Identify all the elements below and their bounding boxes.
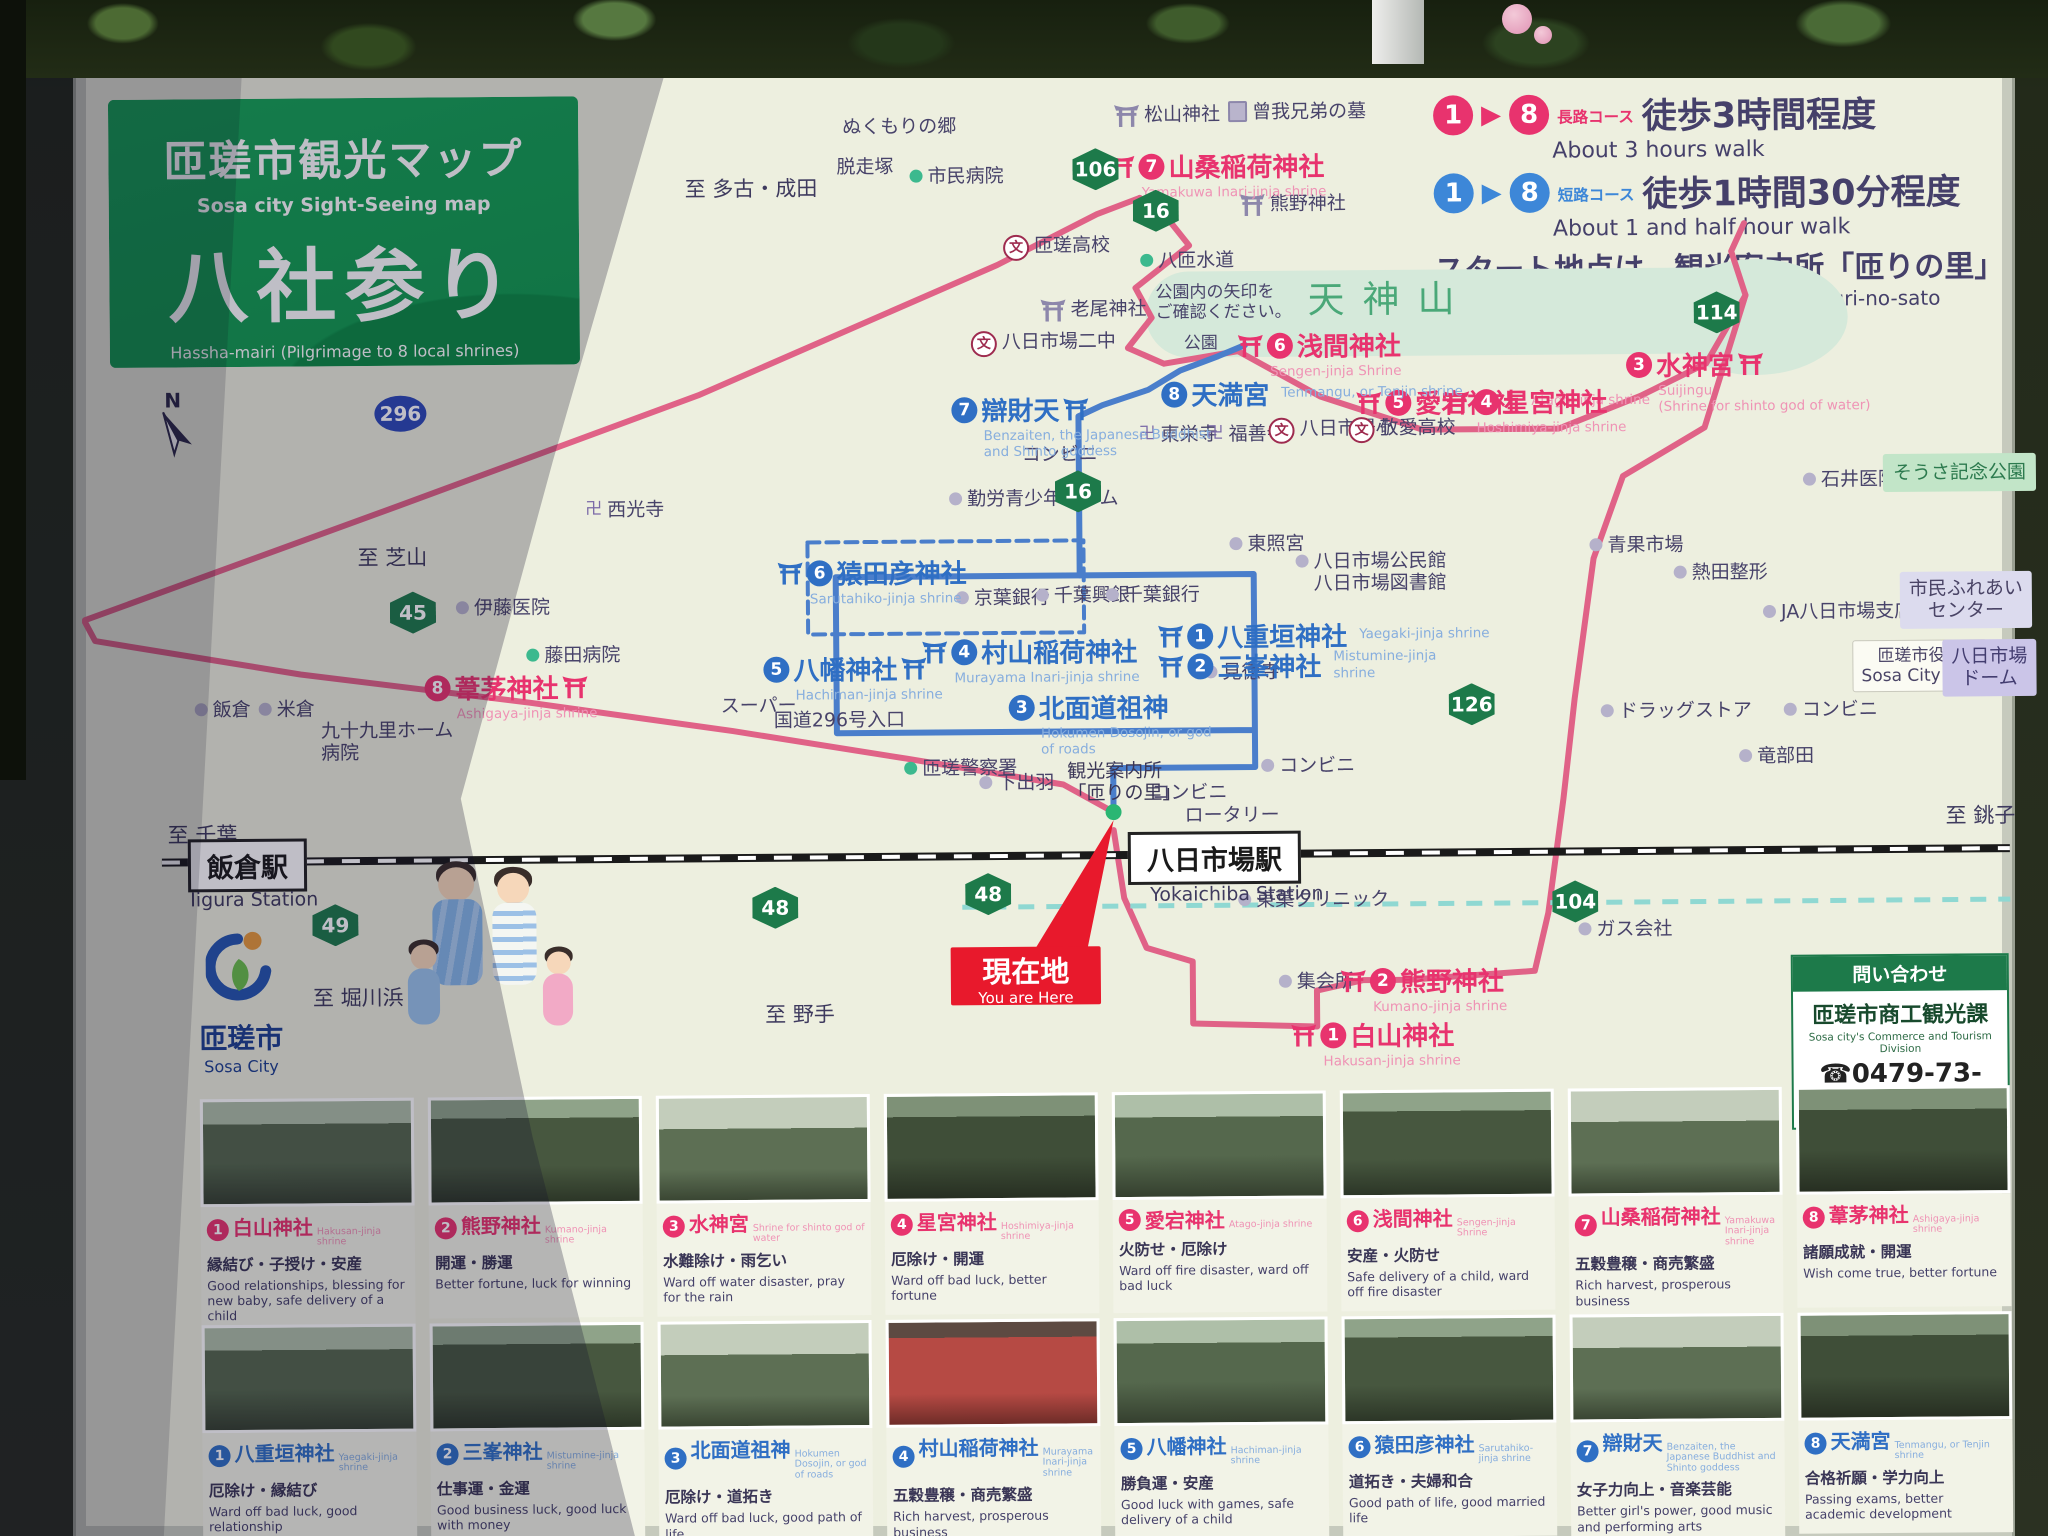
- compass-icon: N: [144, 389, 205, 465]
- shrine-number-badge: 1: [1320, 1022, 1346, 1048]
- you-are-here-en: You are Here: [951, 988, 1101, 1007]
- map-label-text: ぬくもりの郷: [842, 115, 956, 138]
- shrine-romaji: Atago-jinja shrine: [1229, 1220, 1313, 1231]
- shrine-photo: [1112, 1090, 1327, 1200]
- shrine-photo: [1798, 1311, 2013, 1421]
- shrine-benefit-en: Good luck with games, safe delivery of a…: [1121, 1495, 1323, 1527]
- shrine-marker-row: 3北面道祖神: [1009, 687, 1212, 726]
- shrine-card-title-row: 3水神宮Shrine for shinto god of water: [663, 1207, 865, 1245]
- shrine-name: 白山神社: [233, 1211, 313, 1241]
- shrine-marker-row: 2三峯神社Mistumine-jinja shrine: [1158, 646, 1436, 685]
- shrine-card: 7山桑稲荷神社Yamakuwa Inari-jinja shrine五穀豊穣・商…: [1568, 1087, 1784, 1321]
- shrine-number-badge: 8: [424, 675, 450, 701]
- shrine-romaji: Hachiman-jinja shrine: [796, 686, 943, 703]
- torii-icon: [1238, 334, 1263, 357]
- shrine-photo: [1114, 1316, 1329, 1426]
- shrine-benefit-en: Ward off bad luck, good relationship: [209, 1503, 411, 1535]
- map-label: 市民ふれあい センター: [1900, 571, 2032, 629]
- shrine-romaji: Hakusan-jinja shrine: [1323, 1052, 1460, 1069]
- shrine-card: 1八重垣神社Yaegaki-jinja shrine厄除け・縁結びWard of…: [202, 1324, 418, 1536]
- shrine-benefit-en: Safe delivery of a child, ward off fire …: [1347, 1268, 1549, 1300]
- shrine-number-badge: 6: [807, 560, 833, 586]
- shrine-benefit-jp: 安産・火防せ: [1347, 1243, 1549, 1267]
- shrine-card-label: 5八幡神社Hachiman-jinja shrine勝負運・安産Good luc…: [1114, 1424, 1329, 1536]
- shrine-number-badge: 5: [763, 656, 789, 682]
- map-label: ガス会社: [1578, 918, 1672, 941]
- temple-icon: 卍: [585, 499, 602, 519]
- shrine-name: 辯財天: [981, 391, 1059, 429]
- shrine-card-title-row: 4村山稲荷神社Murayama Inari-jinja shrine: [892, 1431, 1094, 1480]
- shrine-benefit-en: Ward off fire disaster, ward off bad luc…: [1119, 1261, 1321, 1293]
- landmark-dot: [1589, 538, 1602, 551]
- shrine-marker: 7山桑稲荷神社Yamakuwa Inari-jinja shrine: [1109, 146, 1326, 201]
- shrine-marker-row: 7山桑稲荷神社: [1109, 146, 1326, 185]
- shrine-card-label: 2熊野神社Kumano-jinja shrine開運・勝運Better fort…: [429, 1204, 644, 1319]
- contact-dept: 匝瑳市商工観光課: [1793, 996, 2007, 1030]
- torii-icon: [1341, 969, 1366, 992]
- shrine-benefit-en: Good path of life, good married life: [1349, 1494, 1551, 1526]
- map-label: 熱田整形: [1674, 561, 1768, 584]
- shrine-romaji: Hachiman-jinja shrine: [1231, 1445, 1323, 1467]
- shrine-marker-row: 2熊野神社: [1341, 961, 1508, 999]
- shrine-photo: [886, 1318, 1101, 1428]
- shrine-romaji: Kumano-jinja shrine: [545, 1225, 637, 1247]
- map-label-text: 青果市場: [1607, 534, 1683, 557]
- shrine-card-title-row: 6猿田彦神社Sarutahiko-jinja shrine: [1348, 1428, 1550, 1466]
- shrine-photo: [428, 1096, 643, 1206]
- shrine-number-badge: 5: [1120, 1438, 1142, 1460]
- shrine-number-badge: 5: [1119, 1208, 1141, 1230]
- shrine-marker: 3水神宮 Suijingu (Shrine for shinto god of …: [1626, 344, 1871, 415]
- map-label: 下出羽: [979, 772, 1054, 795]
- map-label: 曾我兄弟の墓: [1228, 100, 1366, 123]
- shrine-card-title-row: 8天満宮Tenmangu, or Tenjin shrine: [1804, 1424, 2006, 1462]
- shrine-benefit-en: Ward off bad luck, better fortune: [891, 1271, 1093, 1303]
- shrine-card-title-row: 7辯財天Benzaiten, the Japanese Buddhist and…: [1576, 1426, 1778, 1475]
- you-are-here-arrow: [1026, 820, 1115, 963]
- shrine-card: 5愛宕神社Atago-jinja shrine火防せ・厄除けWard off f…: [1112, 1090, 1328, 1324]
- map-label-text: 藤田病院: [544, 644, 620, 667]
- shrine-card-label: 4村山稲荷神社Murayama Inari-jinja shrine五穀豊穣・商…: [886, 1426, 1101, 1536]
- map-label-text: 市民病院: [927, 165, 1003, 188]
- sosa-city-logo: 匝瑳市 Sosa City: [198, 929, 283, 1077]
- shrine-card-title-row: 1八重垣神社Yaegaki-jinja shrine: [208, 1437, 410, 1475]
- shrine-name: 辯財天: [1602, 1427, 1662, 1456]
- sign-content: 匝瑳市観光マップ Sosa city Sight-Seeing map 八社参り…: [0, 0, 2048, 1536]
- shrine-number-badge: 2: [1370, 967, 1396, 993]
- landmark-dot: [259, 703, 272, 716]
- shrine-photo: [656, 1094, 871, 1204]
- map-label-text: ガス会社: [1596, 918, 1672, 941]
- landmark-dot-green: [526, 649, 539, 662]
- shrine-card: 3水神宮Shrine for shinto god of water水難除け・雨…: [656, 1094, 872, 1328]
- landmark-dot: [979, 776, 992, 789]
- map-label: 青果市場: [1589, 534, 1683, 557]
- landmark-dot-green: [910, 170, 923, 183]
- shrine-marker-row: 8葦茅神社: [424, 668, 597, 706]
- station-name-en: Iigura Station: [190, 888, 318, 911]
- shrine-number-badge: 3: [663, 1216, 685, 1238]
- torii-icon: [1158, 625, 1183, 648]
- landmark-dot: [456, 601, 469, 614]
- sign-photo-scene: 匝瑳市観光マップ Sosa city Sight-Seeing map 八社参り…: [0, 0, 2048, 1536]
- map-label-text: 竜部田: [1757, 745, 1814, 768]
- shrine-number-badge: 3: [1009, 694, 1035, 720]
- shrine-romaji: Hoshimiya-jinja shrine: [1001, 1221, 1093, 1243]
- shrine-number-badge: 6: [1347, 1211, 1369, 1233]
- shrine-card-label: 6猿田彦神社Sarutahiko-jinja shrine道拓き・夫婦和合Goo…: [1342, 1423, 1557, 1536]
- shrine-number-badge: 7: [1138, 153, 1164, 179]
- landmark-dot: [1601, 704, 1614, 717]
- shrine-name: 葦茅神社: [454, 668, 558, 706]
- map-label-text: 八匝水道: [1158, 249, 1234, 272]
- pole: [1372, 0, 1424, 64]
- shrine-romaji: Sarutahiko-jinja shrine: [810, 590, 967, 607]
- contact-dept-en: Sosa city's Commerce and Tourism Divisio…: [1793, 1030, 2007, 1056]
- shrine-number-badge: 2: [436, 1444, 458, 1466]
- shrine-card: 3北面道祖神Hokumen Dosojin, or god of roads厄除…: [658, 1320, 874, 1536]
- school-icon: 文: [971, 331, 997, 357]
- landmark-dot: [1036, 589, 1049, 602]
- shrine-benefit-en: Better fortune, luck for winning: [435, 1275, 637, 1292]
- landmark-dot: [1279, 975, 1292, 988]
- map-label: 文匝瑳高校: [1003, 234, 1110, 261]
- map-label-text: 千葉銀行: [1124, 583, 1200, 606]
- shrine-name: 村山稲荷神社: [918, 1432, 1038, 1462]
- shrine-card: 8天満宮Tenmangu, or Tenjin shrine合格祈願・学力向上P…: [1798, 1311, 2014, 1536]
- shrine-card-title-row: 3北面道祖神Hokumen Dosojin, or god of roads: [664, 1433, 866, 1482]
- map-label-text: 八日市場二中: [1002, 330, 1116, 353]
- shrine-card-title-row: 2三峯神社Mistumine-jinja shrine: [436, 1435, 638, 1473]
- map-label-text: 熱田整形: [1692, 561, 1768, 584]
- shrine-name: 浅間神社: [1297, 326, 1401, 364]
- shrine-card-title-row: 8葦茅神社Ashigaya-jinja shrine: [1803, 1198, 2005, 1236]
- shrine-marker: 8葦茅神社 Ashigaya-jinja shrine: [424, 668, 597, 723]
- you-are-here-jp: 現在地: [951, 948, 1101, 991]
- landmark-dot: [1261, 759, 1274, 772]
- shrine-photo: [202, 1324, 417, 1434]
- shrine-name: 八幡神社: [793, 650, 897, 688]
- map-label: 老尾神社: [1041, 298, 1147, 322]
- shrine-photo: [1568, 1087, 1783, 1197]
- shrine-romaji: Hakusan-jinja shrine: [317, 1227, 409, 1249]
- shrine-number-badge: 4: [893, 1445, 915, 1467]
- shrine-card: 1白山神社Hakusan-jinja shrine縁結び・子授け・安産Good …: [200, 1098, 416, 1332]
- you-are-here-box: 現在地 You are Here: [951, 946, 1101, 1005]
- shrine-number-badge: 2: [435, 1218, 457, 1240]
- shrine-benefit-en: Better girl's power, good music and perf…: [1577, 1502, 1779, 1534]
- shrine-card: 4星宮神社Hoshimiya-jinja shrine厄除け・開運Ward of…: [884, 1092, 1100, 1326]
- shrine-card: 6猿田彦神社Sarutahiko-jinja shrine道拓き・夫婦和合Goo…: [1342, 1315, 1558, 1536]
- shrine-number-badge: 7: [1576, 1440, 1598, 1462]
- map-label-text: 米倉: [277, 698, 315, 721]
- shrine-number-badge: 2: [1187, 653, 1213, 679]
- map-label-text: 松山神社: [1144, 103, 1220, 126]
- shrine-benefit-jp: 水難除け・雨乞い: [663, 1248, 865, 1272]
- map-label-text: 伊藤医院: [474, 597, 550, 620]
- shrine-card: 6浅間神社Sengen-jinja Shrine安産・火防せSafe deliv…: [1340, 1089, 1556, 1323]
- landmark-dot: [1229, 537, 1242, 550]
- shrine-benefit-jp: 五穀豊穣・商売繁盛: [1575, 1251, 1777, 1275]
- station-name-en: Yokaichiba Station: [1150, 882, 1324, 905]
- shrine-card-label: 3水神宮Shrine for shinto god of water水難除け・雨…: [657, 1202, 872, 1317]
- shrine-card-title-row: 5八幡神社Hachiman-jinja shrine: [1120, 1429, 1322, 1467]
- map-label: 至 堀川浜: [313, 986, 404, 1011]
- shrine-benefit-jp: 諸願成就・開運: [1803, 1239, 2005, 1263]
- shrine-romaji: Kumano-jinja shrine: [1373, 998, 1507, 1015]
- family-illustration: [394, 862, 625, 1044]
- map-label: 卍西光寺: [585, 499, 664, 522]
- landmark-dot: [1578, 922, 1591, 935]
- shrine-benefit-jp: 縁結び・子授け・安産: [207, 1252, 409, 1276]
- shrine-benefit-en: Ward off bad luck, good path of life: [665, 1509, 867, 1536]
- shrine-romaji: Ashigaya-jinja shrine: [1913, 1214, 2005, 1236]
- shrine-card-label: 6浅間神社Sengen-jinja Shrine安産・火防せSafe deliv…: [1341, 1197, 1556, 1312]
- shrine-photo: [658, 1320, 873, 1430]
- map-label-text: 老尾神社: [1071, 298, 1147, 321]
- shrine-romaji: Hoshimiya-jinja shrine: [1476, 419, 1626, 436]
- shrine-romaji: Tenmangu, or Tenjin shrine: [1895, 1440, 2007, 1462]
- landmark-dot: [1296, 555, 1309, 568]
- shrine-romaji: Murayama Inari-jinja shrine: [954, 669, 1139, 687]
- map-label: コンビニ: [1784, 698, 1878, 721]
- map-label: 松山神社: [1114, 103, 1220, 127]
- torii-icon: [1291, 1024, 1316, 1047]
- shrine-romaji: Sengen-jinja Shrine: [1457, 1218, 1549, 1240]
- map-label-text: 九十九里ホーム 病院: [321, 719, 454, 765]
- landmark-dot: [1106, 588, 1119, 601]
- city-name-en: Sosa City: [199, 1057, 283, 1077]
- shrine-marker-row: 5八幡神社: [763, 649, 942, 687]
- shrine-card-label: 8天満宮Tenmangu, or Tenjin shrine合格祈願・学力向上P…: [1798, 1419, 2013, 1534]
- shrine-card: 2三峯神社Mistumine-jinja shrine仕事運・金運Good bu…: [430, 1322, 646, 1536]
- shrine-romaji: Yaegaki-jinja shrine: [1359, 626, 1489, 643]
- shrine-photo: [1570, 1313, 1785, 1423]
- map-label-text: 脱走塚: [836, 156, 893, 179]
- shrine-photo: [1796, 1085, 2011, 1195]
- shrine-photo: [430, 1322, 645, 1432]
- map-label: 藤田病院: [526, 644, 620, 667]
- map-label: 文八日市場二中: [971, 330, 1116, 357]
- landmark-dot-green: [1140, 254, 1153, 267]
- shrine-benefit-en: Ward off water disaster, pray for the ra…: [663, 1273, 865, 1305]
- map-label: 脱走塚: [836, 156, 893, 179]
- sign-subtitle-jp: 八社参り: [109, 220, 580, 340]
- shrine-romaji: Mistumine-jinja shrine: [1333, 648, 1436, 681]
- shrine-marker: 8天満宮Tenmangu, or Tenjin shrine: [1161, 373, 1463, 412]
- shrine-marker: 2三峯神社Mistumine-jinja shrine: [1158, 646, 1436, 685]
- torii-icon: [1738, 352, 1763, 375]
- map-label: 飯倉: [195, 699, 251, 722]
- station-box: 八日市場駅: [1128, 831, 1301, 885]
- shrine-benefit-jp: 道拓き・夫婦和合: [1349, 1469, 1551, 1493]
- shrine-romaji: Ashigaya-jinja shrine: [457, 705, 598, 722]
- map-label-text: 八日市場 ドーム: [1942, 639, 2036, 697]
- shrine-benefit-jp: 開運・勝運: [435, 1250, 637, 1274]
- landmark-dot: [1763, 605, 1776, 618]
- shrine-name: 熊野神社: [1400, 961, 1504, 999]
- shrine-card: 5八幡神社Hachiman-jinja shrine勝負運・安産Good luc…: [1114, 1316, 1330, 1536]
- shrine-photo: [1342, 1315, 1557, 1425]
- shrine-card-label: 5愛宕神社Atago-jinja shrine火防せ・厄除けWard off f…: [1113, 1198, 1328, 1313]
- shrine-romaji: Sarutahiko-jinja shrine: [1479, 1444, 1551, 1465]
- shrine-name: 天満宮: [1830, 1425, 1890, 1454]
- shrine-name: 水神宮: [689, 1208, 749, 1237]
- shrine-marker: 3北面道祖神Hokumen Dosojin, or god of roads: [1009, 687, 1212, 758]
- shrine-name: 北面道祖神: [690, 1434, 790, 1464]
- shrine-benefit-en: Good relationships, blessing for new bab…: [207, 1277, 409, 1324]
- shrine-name: 山桑稲荷神社: [1168, 146, 1324, 184]
- shrine-romaji: Suijingu (Shrine for shinto god of water…: [1658, 381, 1870, 415]
- map-label-text: ドラッグストア: [1619, 699, 1752, 722]
- flower: [1534, 26, 1552, 44]
- tenjinyama-label: 天神山: [1307, 277, 1472, 322]
- map-label: 公園内の矢印を ご確認ください。: [1155, 282, 1291, 323]
- torii-icon: [1158, 655, 1183, 678]
- shrine-marker-row: 4星宮神社: [1444, 382, 1626, 420]
- shrine-number-badge: 8: [1804, 1433, 1826, 1455]
- shrine-romaji: Murayama Inari-jinja shrine: [1043, 1447, 1095, 1479]
- shrine-marker: 1白山神社Hakusan-jinja shrine: [1291, 1015, 1461, 1070]
- shrine-name: 村山稲荷神社: [981, 632, 1137, 670]
- sign-header: 匝瑳市観光マップ Sosa city Sight-Seeing map 八社参り…: [108, 96, 580, 368]
- map-label-text: 至 芝山: [357, 545, 427, 570]
- shrine-cards-row-long-course: 1白山神社Hakusan-jinja shrine縁結び・子授け・安産Good …: [200, 1085, 2012, 1332]
- map-label: ぬくもりの郷: [842, 115, 956, 138]
- map-label: 至 多古・成田: [685, 176, 818, 202]
- shrine-card-label: 7辯財天Benzaiten, the Japanese Buddhist and…: [1570, 1421, 1785, 1536]
- shrine-number-badge: 6: [1267, 332, 1293, 358]
- map-label: 東照宮: [1229, 533, 1304, 556]
- landmark-dot: [1784, 703, 1797, 716]
- shrine-number-badge: 1: [209, 1445, 231, 1467]
- foliage-background: [0, 0, 2048, 78]
- map-label-text: 公園: [1184, 333, 1218, 353]
- shrine-name: 愛宕神社: [1145, 1204, 1225, 1234]
- shrine-photo: [884, 1092, 1099, 1202]
- shrine-card-title-row: 5愛宕神社Atago-jinja shrine: [1119, 1203, 1321, 1234]
- shrine-card-label: 1八重垣神社Yaegaki-jinja shrine厄除け・縁結びWard of…: [202, 1432, 417, 1536]
- map-label: 米倉: [259, 698, 315, 721]
- shrine-number-badge: 4: [951, 639, 977, 665]
- shrine-marker-row: 4村山稲荷神社: [922, 632, 1139, 671]
- shrine-marker-row: 3水神宮: [1626, 344, 1870, 383]
- map-label: 市民病院: [909, 165, 1003, 188]
- shrine-card-title-row: 2熊野神社Kumano-jinja shrine: [435, 1209, 637, 1247]
- map-label-text: 至 堀川浜: [313, 986, 404, 1011]
- shrine-number-badge: 8: [1161, 381, 1187, 407]
- shrine-romaji: Tenmangu, or Tenjin shrine: [1281, 384, 1463, 402]
- shrine-marker: 6猿田彦神社Sarutahiko-jinja shrine: [778, 553, 967, 608]
- shrine-marker: 2熊野神社Kumano-jinja shrine: [1341, 961, 1508, 1015]
- shrine-number-badge: 8: [1803, 1207, 1825, 1229]
- shrine-marker: 6浅間神社Sengen-jinja Shrine: [1238, 326, 1402, 380]
- map-label-text: 至 銚子: [1946, 803, 2016, 828]
- shrine-number-badge: 3: [1626, 351, 1652, 377]
- shrine-card-title-row: 1白山神社Hakusan-jinja shrine: [207, 1211, 409, 1249]
- shrine-card-title-row: 4星宮神社Hoshimiya-jinja shrine: [891, 1205, 1093, 1243]
- map-label: 八日市場公民館 八日市場図書館: [1296, 549, 1447, 595]
- shrine-name: 三峯神社: [1217, 646, 1321, 684]
- shrine-name: 星宮神社: [917, 1206, 997, 1236]
- dark-post: [0, 0, 26, 780]
- shrine-romaji: Mistumine-jinja shrine: [547, 1451, 639, 1473]
- map-label-text: 公園内の矢印を ご確認ください。: [1155, 282, 1291, 323]
- shrine-marker-row: 6浅間神社: [1238, 326, 1402, 364]
- shrine-benefit-jp: 厄除け・縁結び: [209, 1478, 411, 1502]
- map-label-text: コンビニ: [1151, 781, 1227, 804]
- shrine-romaji: Yaegaki-jinja shrine: [339, 1453, 411, 1474]
- map-label: そうさ記念公園: [1883, 453, 2036, 493]
- map-label: 八匝水道: [1140, 249, 1234, 272]
- map-label-text: 曾我兄弟の墓: [1252, 100, 1366, 123]
- shrine-name: 猿田彦神社: [837, 553, 967, 591]
- map-label-text: そうさ記念公園: [1883, 453, 2036, 493]
- shrine-number-badge: 4: [1473, 389, 1499, 415]
- shrine-benefit-en: Passing exams, better academic developme…: [1805, 1490, 2007, 1522]
- shrine-name: 葦茅神社: [1829, 1199, 1909, 1229]
- tourist-info-dot: [1105, 804, 1121, 820]
- shrine-number-badge: 3: [665, 1447, 687, 1469]
- shrine-benefit-jp: 火防せ・厄除け: [1119, 1236, 1321, 1260]
- contact-header: 問い合わせ: [1793, 955, 2007, 992]
- shrine-romaji: Yamakuwa Inari-jinja shrine: [1725, 1216, 1777, 1248]
- shrine-name: 八重垣神社: [234, 1437, 334, 1467]
- shrine-name: 猿田彦神社: [1374, 1428, 1474, 1458]
- map-label: ドラッグストア: [1601, 699, 1752, 723]
- shrine-photo: [1340, 1089, 1555, 1199]
- map-label-text: JA八日市場支店: [1781, 600, 1913, 623]
- map-label: 竜部田: [1739, 745, 1814, 768]
- shrine-benefit-en: Wish come true, better fortune: [1803, 1264, 2005, 1281]
- shrine-name: 三峯神社: [462, 1436, 542, 1466]
- shrine-card-label: 8葦茅神社Ashigaya-jinja shrine諸願成就・開運Wish co…: [1797, 1193, 2012, 1308]
- shrine-card: 7辯財天Benzaiten, the Japanese Buddhist and…: [1570, 1313, 1786, 1536]
- shrine-card-title-row: 7山桑稲荷神社Yamakuwa Inari-jinja shrine: [1575, 1200, 1777, 1249]
- shrine-romaji: Hokumen Dosojin, or god of roads: [1041, 724, 1212, 758]
- shrine-card: 4村山稲荷神社Murayama Inari-jinja shrine五穀豊穣・商…: [886, 1318, 1102, 1536]
- torii-icon: [1041, 298, 1066, 321]
- sign-title-en: Sosa city Sight-Seeing map: [109, 192, 579, 218]
- map-label-text: 下出羽: [997, 772, 1054, 795]
- landmark-dot: [1803, 473, 1816, 486]
- shrine-card-title-row: 6浅間神社Sengen-jinja Shrine: [1347, 1202, 1549, 1240]
- map-label: コンビニ: [1261, 754, 1355, 777]
- map-label: 九十九里ホーム 病院: [321, 719, 454, 765]
- shrine-name: 星宮神社: [1503, 382, 1607, 420]
- map-label-text: 八日市場公民館 八日市場図書館: [1314, 549, 1447, 595]
- map-label-text: 至 多古・成田: [685, 176, 818, 202]
- map-label: 至 野手: [765, 1002, 835, 1027]
- city-name-jp: 匝瑳市: [199, 1017, 283, 1058]
- shrine-name: 白山神社: [1350, 1015, 1454, 1053]
- map-label: 伊藤医院: [456, 597, 550, 620]
- shrine-card-label: 1白山神社Hakusan-jinja shrine縁結び・子授け・安産Good …: [201, 1206, 416, 1332]
- shrine-number-badge: 6: [1348, 1437, 1370, 1459]
- shrine-name: 北面道祖神: [1039, 688, 1169, 726]
- shrine-marker-row: 6猿田彦神社: [778, 553, 967, 591]
- map-label: JA八日市場支店: [1763, 600, 1913, 624]
- shrine-number-badge: 7: [951, 397, 977, 423]
- torii-icon: [922, 640, 947, 663]
- shrine-card-label: 4星宮神社Hoshimiya-jinja shrine厄除け・開運Ward of…: [885, 1200, 1100, 1315]
- shrine-card-label: 7山桑稲荷神社Yamakuwa Inari-jinja shrine五穀豊穣・商…: [1569, 1195, 1784, 1316]
- map-label: 千葉銀行: [1106, 583, 1200, 606]
- shrine-benefit-en: Rich harvest, prosperous business: [1575, 1276, 1777, 1308]
- shrine-benefit-en: Good business luck, good luck with money: [437, 1501, 639, 1533]
- map-label-text: 匝瑳高校: [1034, 234, 1110, 257]
- shrine-cards-row-short-course: 1八重垣神社Yaegaki-jinja shrine厄除け・縁結びWard of…: [202, 1311, 2014, 1536]
